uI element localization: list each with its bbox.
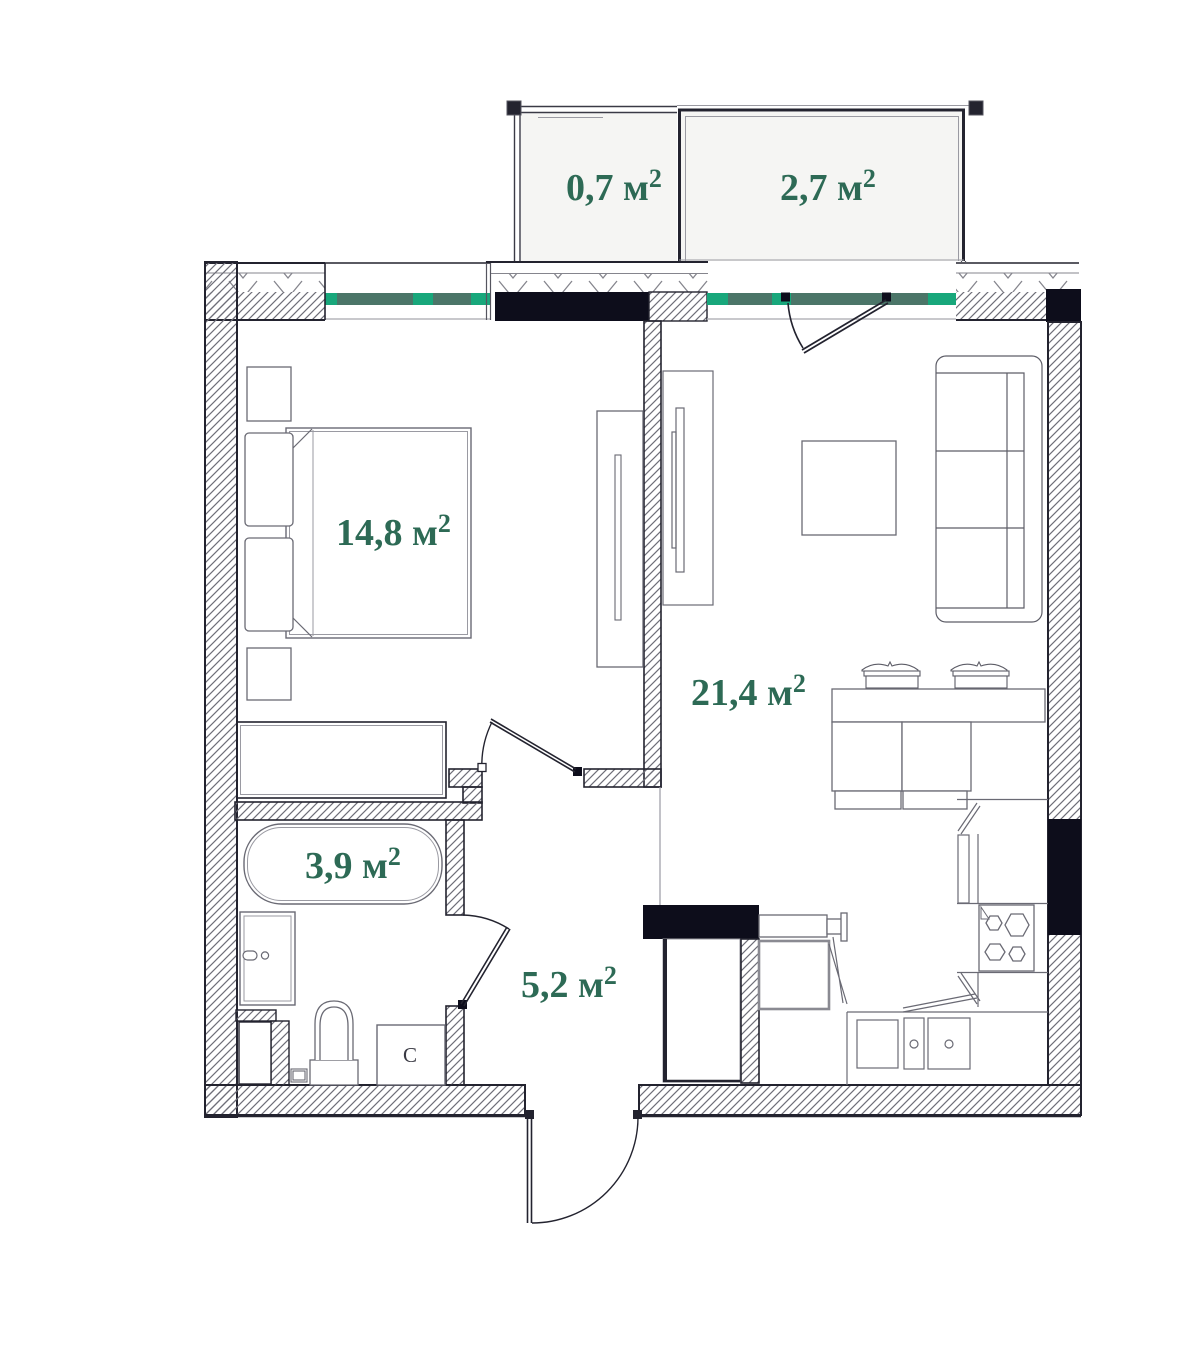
svg-text:2,7 м2: 2,7 м2 — [780, 164, 876, 209]
svg-text:3,9 м2: 3,9 м2 — [305, 842, 401, 887]
svg-text:0,7 м2: 0,7 м2 — [566, 164, 662, 209]
svg-text:21,4 м2: 21,4 м2 — [691, 669, 806, 714]
svg-text:5,2 м2: 5,2 м2 — [521, 961, 617, 1006]
svg-text:14,8 м2: 14,8 м2 — [336, 509, 451, 554]
svg-text:C: C — [403, 1043, 417, 1067]
